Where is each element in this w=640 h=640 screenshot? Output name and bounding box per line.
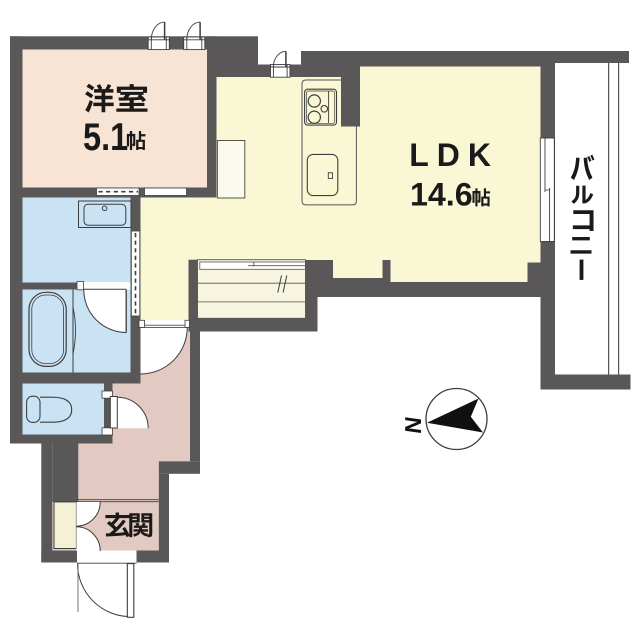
svg-text:5.1: 5.1 xyxy=(83,114,128,159)
svg-text:14.6: 14.6 xyxy=(410,176,473,212)
svg-text:LDK: LDK xyxy=(409,137,499,173)
